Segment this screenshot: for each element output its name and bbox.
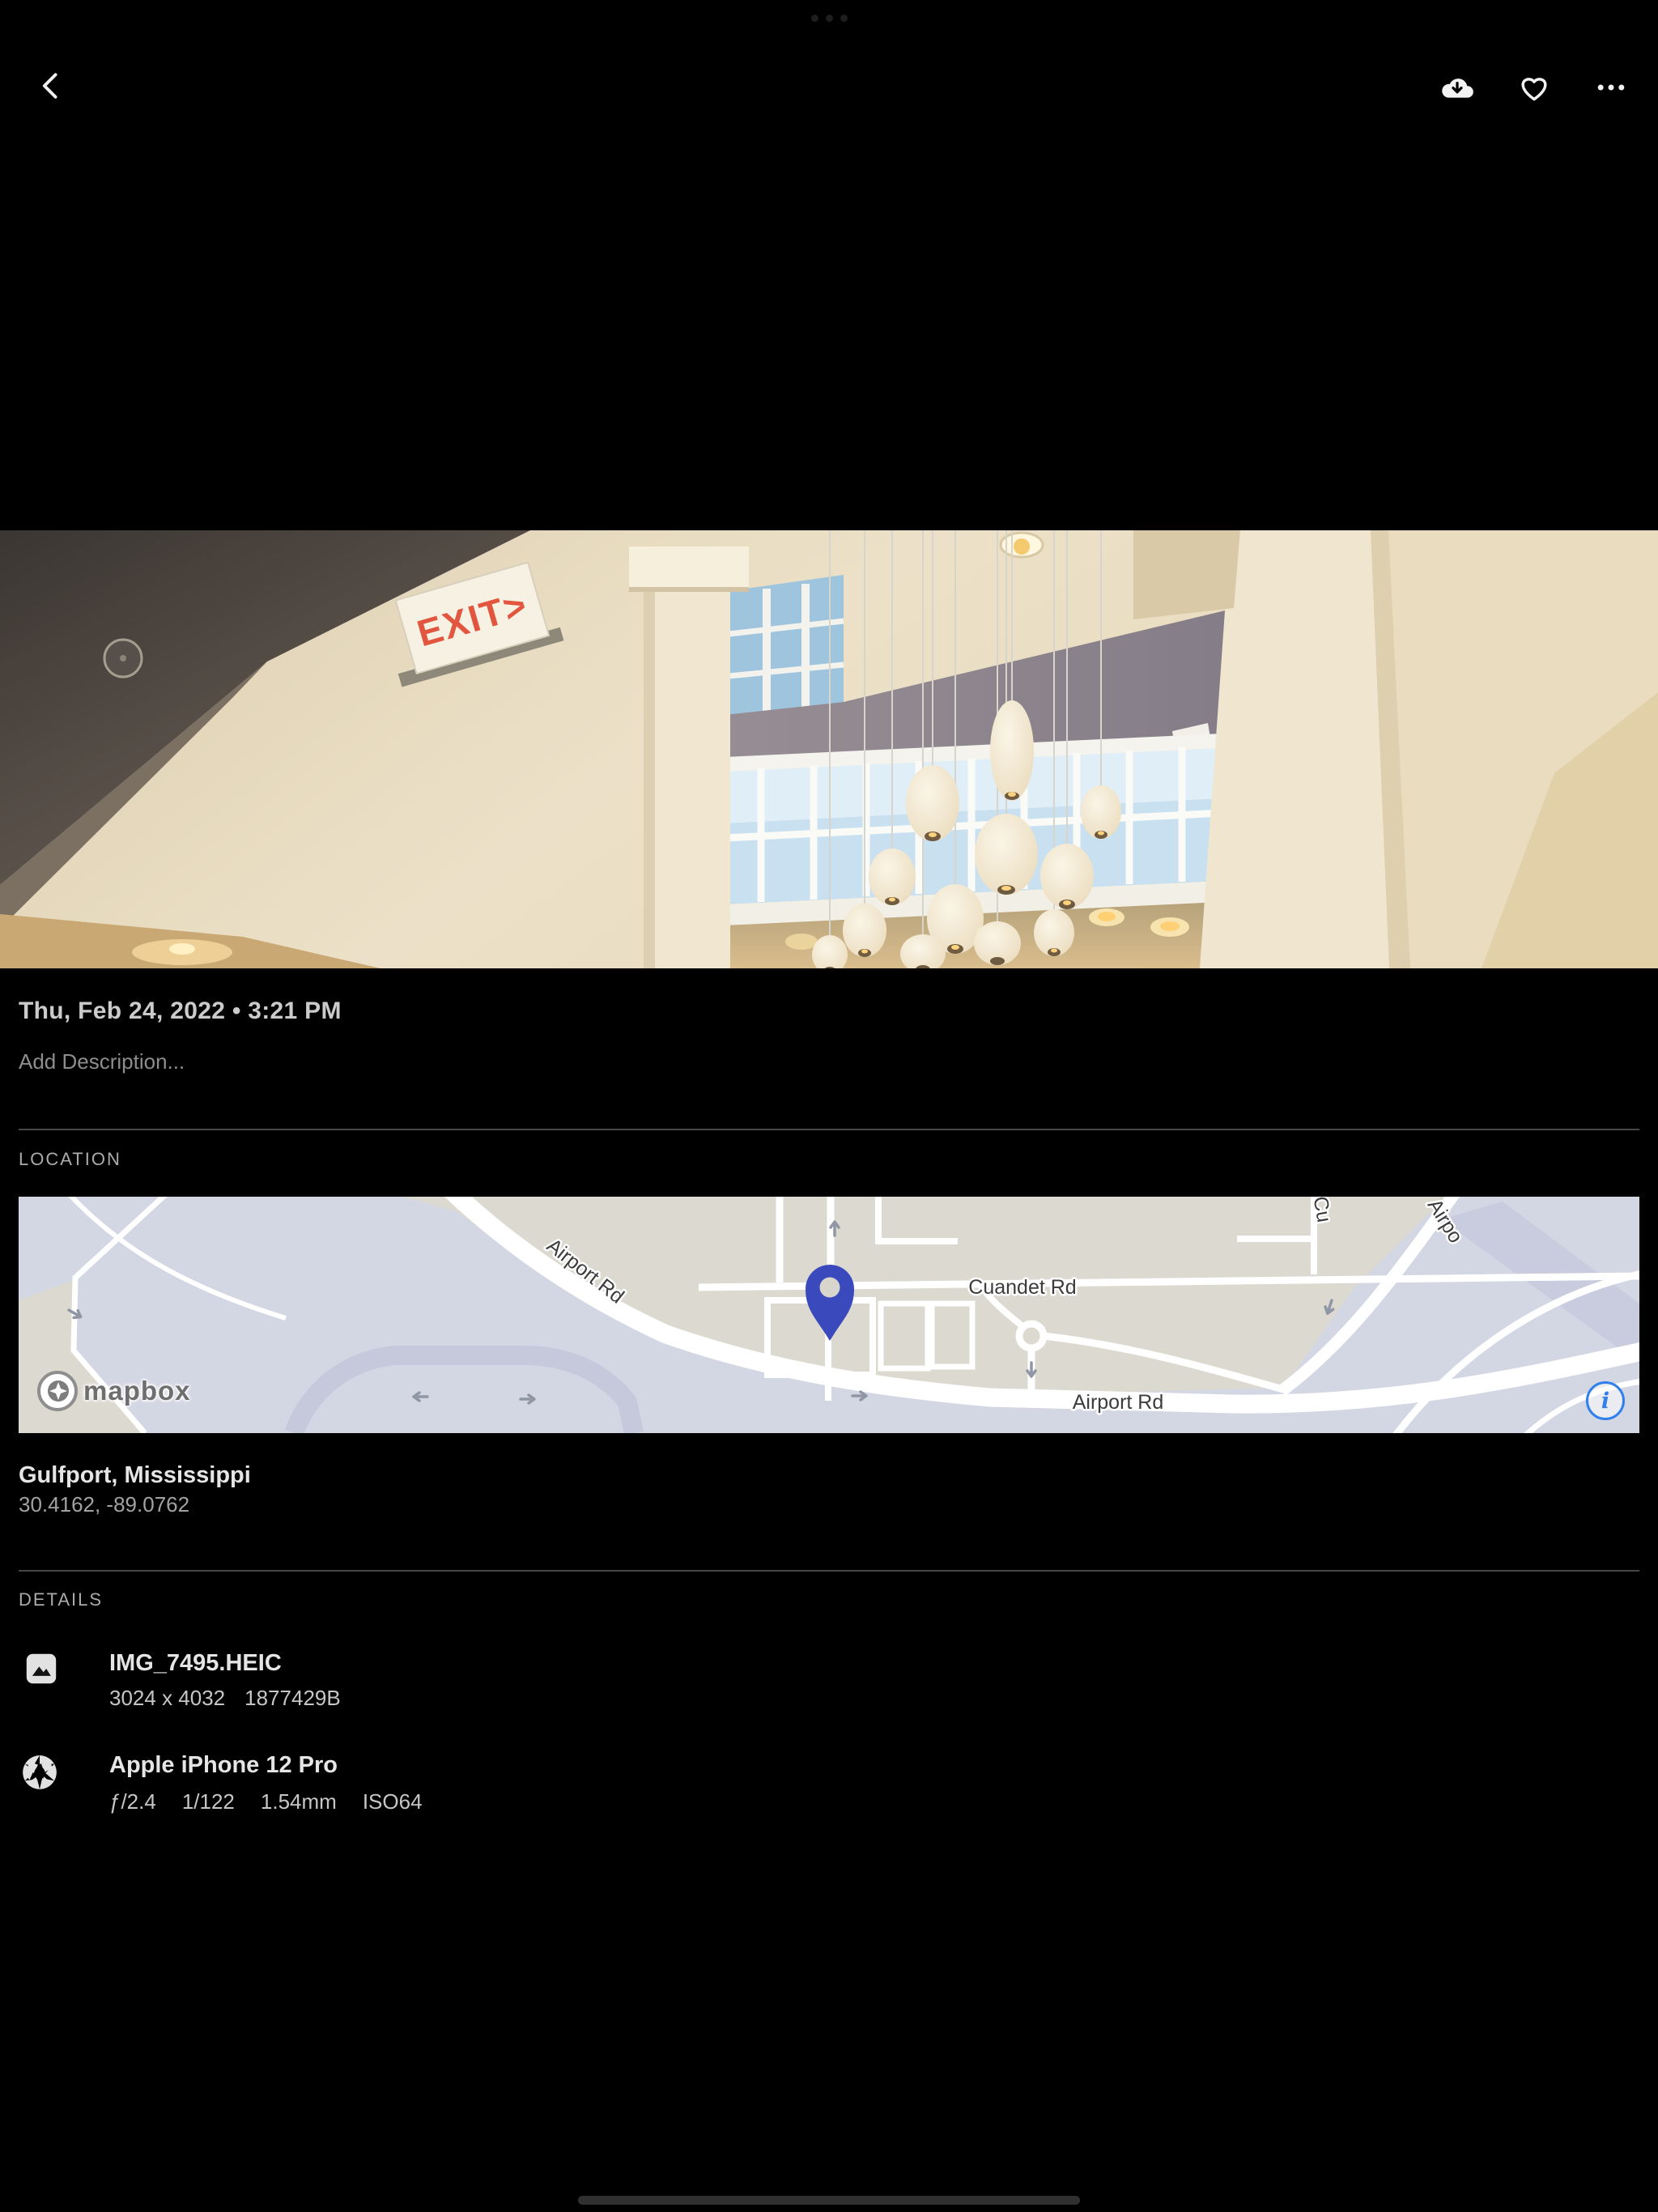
location-coordinates: 30.4162, -89.0762 bbox=[19, 1492, 189, 1517]
details-section-label: DETAILS bbox=[19, 1589, 103, 1610]
photo-scene: EXIT> bbox=[0, 530, 1658, 968]
ellipsis-icon bbox=[1593, 70, 1629, 105]
mapbox-logo-icon bbox=[36, 1370, 79, 1412]
map-info-button[interactable]: i bbox=[1586, 1381, 1625, 1420]
photo-details-screen: { "system": { "multitask_icon": "three-d… bbox=[0, 0, 1658, 2212]
add-description-field[interactable]: Add Description... bbox=[19, 1049, 185, 1074]
photo-view[interactable]: EXIT> bbox=[0, 530, 1658, 968]
camera-shutter-speed: 1/122 bbox=[182, 1789, 235, 1814]
map-label-c-partial: Cu bbox=[1308, 1197, 1335, 1224]
location-section-label: LOCATION bbox=[19, 1149, 121, 1170]
mapbox-logo-text: mapbox bbox=[83, 1376, 191, 1406]
more-options-button[interactable] bbox=[1592, 68, 1630, 107]
mapbox-attribution[interactable]: mapbox bbox=[36, 1370, 191, 1412]
heart-outline-icon bbox=[1516, 69, 1553, 106]
map-label-cuandet-rd: Cuandet Rd bbox=[968, 1276, 1076, 1299]
divider bbox=[19, 1570, 1639, 1572]
camera-focal-length: 1.54mm bbox=[261, 1789, 337, 1814]
location-map[interactable]: Cuandet Rd Airport Rd Airport Rd Airpo C… bbox=[19, 1197, 1639, 1433]
file-name: IMG_7495.HEIC bbox=[109, 1650, 282, 1677]
camera-aperture-icon bbox=[19, 1752, 60, 1797]
map-label-airport-rd: Airport Rd bbox=[1073, 1391, 1164, 1414]
info-icon: i bbox=[1601, 1389, 1609, 1414]
dot bbox=[840, 15, 848, 22]
chevron-left-icon bbox=[34, 68, 70, 104]
photo-datetime: Thu, Feb 24, 2022 • 3:21 PM bbox=[19, 998, 342, 1025]
cloud-download-icon bbox=[1439, 69, 1476, 106]
location-place: Gulfport, Mississippi bbox=[19, 1462, 251, 1489]
home-indicator[interactable] bbox=[578, 2196, 1080, 2205]
camera-name: Apple iPhone 12 Pro bbox=[109, 1752, 338, 1779]
multitask-indicator-icon[interactable] bbox=[0, 15, 1658, 22]
image-file-icon bbox=[23, 1650, 60, 1691]
back-button[interactable] bbox=[32, 66, 71, 105]
file-dimensions: 3024 x 4032 bbox=[109, 1686, 225, 1711]
file-size: 1877429B bbox=[244, 1686, 341, 1711]
download-button[interactable] bbox=[1438, 68, 1477, 107]
divider bbox=[19, 1129, 1639, 1130]
dot bbox=[826, 15, 833, 22]
camera-aperture: ƒ/2.4 bbox=[109, 1789, 156, 1814]
favorite-button[interactable] bbox=[1515, 68, 1554, 107]
file-metadata: 3024 x 4032 1877429B bbox=[109, 1686, 341, 1711]
camera-iso: ISO64 bbox=[363, 1789, 423, 1814]
map-canvas: Cuandet Rd Airport Rd Airport Rd Airpo C… bbox=[19, 1197, 1639, 1433]
camera-metadata: ƒ/2.4 1/122 1.54mm ISO64 bbox=[109, 1789, 423, 1814]
dot bbox=[811, 15, 818, 22]
